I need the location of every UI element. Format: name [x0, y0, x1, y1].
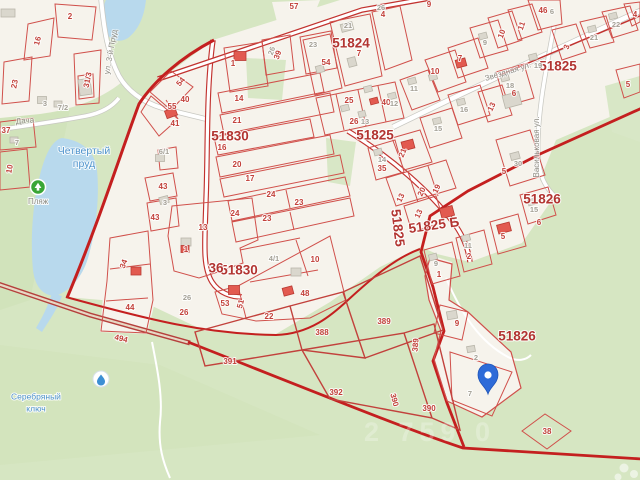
water-name-label: Четвертый: [58, 145, 111, 157]
building-number-label: 3: [43, 99, 47, 108]
parcel-number-label: 26: [350, 117, 359, 126]
parcel-number-label: 1: [184, 245, 189, 254]
building-number-label: 6/1: [159, 147, 169, 156]
parcel-number-label: 392: [329, 388, 343, 397]
parcel-number-label: 9: [455, 319, 460, 328]
building-footprint: [467, 345, 476, 352]
parcel-number-label: 391: [223, 357, 237, 366]
building-footprint: [1, 9, 15, 17]
parcel-number-label: 54: [322, 58, 331, 67]
building-footprint: [347, 57, 357, 68]
parcel-number-label: 17: [246, 174, 255, 183]
parcel-number-label: 389: [377, 317, 391, 326]
parcel-number-label: 43: [159, 182, 168, 191]
parcel-number-label: 40: [181, 95, 190, 104]
building-number-label: 7: [468, 389, 472, 398]
building-number-label: 12: [390, 99, 398, 108]
building-number-label: 9: [434, 259, 438, 268]
parcel-number-label: 5: [502, 167, 507, 176]
building-number-label: 22: [612, 20, 620, 29]
poi-label: Пляж: [28, 197, 49, 206]
building-number-label: 26: [377, 3, 385, 12]
building-number-label: 6: [550, 7, 554, 16]
building-number-label: 26: [183, 293, 191, 302]
building-number-label: 11: [410, 84, 418, 93]
quarter-number-label: 51824: [332, 36, 370, 51]
building-number-label: 7/2: [58, 103, 68, 112]
parcel-number-label: 35: [378, 164, 387, 173]
parcel-number-label: 14: [235, 94, 244, 103]
quarter-number-label: 51825: [356, 128, 394, 143]
parcel-number-label: 2: [68, 12, 73, 21]
parcel-number-label: 48: [301, 289, 310, 298]
building-number-label: 14: [378, 155, 387, 164]
parcel-number-label: 16: [218, 143, 227, 152]
quarter-number-label: 51830: [220, 263, 258, 278]
parcel-number-label: 390: [422, 404, 436, 413]
parcel-number-label: 2: [467, 252, 472, 261]
parcel-number-label: 25: [345, 96, 354, 105]
parcel-number-label: 7: [458, 54, 463, 63]
parcel-number-label: 6: [512, 89, 517, 98]
building-footprint-red: [229, 286, 240, 295]
building-number-label: 18: [506, 81, 514, 90]
parcel-number-label: 22: [265, 312, 274, 321]
quarter-number-label: 51825: [539, 59, 577, 74]
building-footprint-red: [234, 52, 246, 61]
building-footprint: [291, 268, 301, 276]
building-number-label: 15: [434, 124, 442, 133]
street-name-label: Дача: [16, 115, 35, 125]
building-number-label: 13: [361, 117, 369, 126]
parcel-number-label: 26: [180, 308, 189, 317]
parcel-number-label: 23: [263, 214, 272, 223]
watermark-text: 2 759 0: [364, 417, 496, 447]
water-name-label: ключ: [26, 403, 45, 413]
beach-poi-icon[interactable]: [31, 180, 46, 195]
parcel-number-label: 7: [357, 49, 362, 58]
parcel-number-label: 20: [233, 160, 242, 169]
parcel-number-label: 389: [411, 337, 421, 352]
building-number-label: 21: [590, 33, 598, 42]
water-name-label: пруд: [73, 158, 95, 170]
parcel-number-label: 5: [626, 80, 631, 89]
building-number-label: 9: [483, 38, 487, 47]
quarter-number-label: 36: [208, 261, 224, 276]
parcel-number-label: 23: [295, 198, 304, 207]
parcel-number-label: 9: [427, 0, 432, 9]
parcel-number-label: 43: [151, 213, 160, 222]
building-number-label: 7: [15, 138, 19, 147]
parcel-number-label: 10: [431, 67, 440, 76]
building-number-label: 3: [163, 198, 167, 207]
parcel-number-label: 24: [267, 190, 276, 199]
building-footprint-red: [131, 267, 141, 275]
parcel-number-label: 10: [311, 255, 320, 264]
parcel-number-label: 21: [233, 116, 242, 125]
building-number-label: 16: [460, 105, 468, 114]
parcel-number-label: 388: [315, 328, 329, 337]
parcel-number-label: 5: [501, 232, 506, 241]
quarter-number-label: 51826: [498, 329, 536, 344]
parcel-number-label: 38: [543, 427, 552, 436]
parcel-number-label: 13: [199, 223, 208, 232]
parcel-number-label: 6: [537, 218, 542, 227]
street-name-label: Васильковая ул.: [532, 116, 541, 177]
building-number-label: 15: [530, 205, 538, 214]
parcel-number-label: 37: [2, 126, 11, 135]
parcel-number-label: 4: [633, 10, 638, 19]
building-number-label: 11: [464, 241, 472, 250]
building-number-label: 4/1: [269, 254, 279, 263]
building-number-label: 2: [474, 353, 478, 362]
spring-poi-icon[interactable]: [93, 371, 109, 387]
water-name-label: Серебряный: [11, 391, 61, 401]
parcel-number-label: 44: [126, 303, 135, 312]
parcel-number-label: 46: [539, 6, 548, 15]
parcel-number-label: 1: [231, 59, 236, 68]
quarter-number-label: 51830: [211, 129, 249, 144]
building-number-label: 19: [534, 61, 542, 70]
building-number-label: 23: [309, 40, 317, 49]
cadastral-map-canvas[interactable]: 5183051830365182451825518255182551825 Б5…: [0, 0, 640, 480]
parcel-number-label: 57: [290, 2, 299, 11]
building-number-label: 21: [344, 21, 352, 30]
building-number-label: 30: [514, 159, 522, 168]
parcel-number-label: 41: [171, 119, 180, 128]
parcel-number-label: 55: [168, 102, 177, 111]
parcel-number-label: 1: [437, 270, 442, 279]
parcel-number-label: 53: [221, 299, 230, 308]
parcel-number-label: 24: [231, 209, 240, 218]
